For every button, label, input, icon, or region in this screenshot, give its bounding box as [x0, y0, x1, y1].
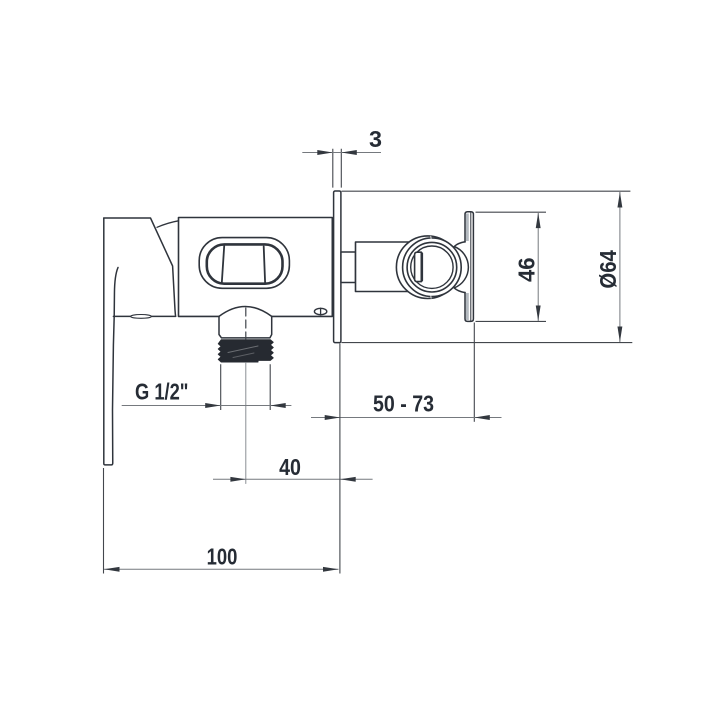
svg-text:3: 3 — [369, 126, 382, 152]
svg-text:40: 40 — [279, 454, 301, 480]
svg-text:50 - 73: 50 - 73 — [373, 390, 434, 416]
svg-text:Ø64: Ø64 — [595, 250, 621, 289]
svg-text:G 1/2": G 1/2" — [135, 378, 189, 404]
svg-text:46: 46 — [514, 258, 540, 283]
svg-text:100: 100 — [207, 544, 238, 570]
